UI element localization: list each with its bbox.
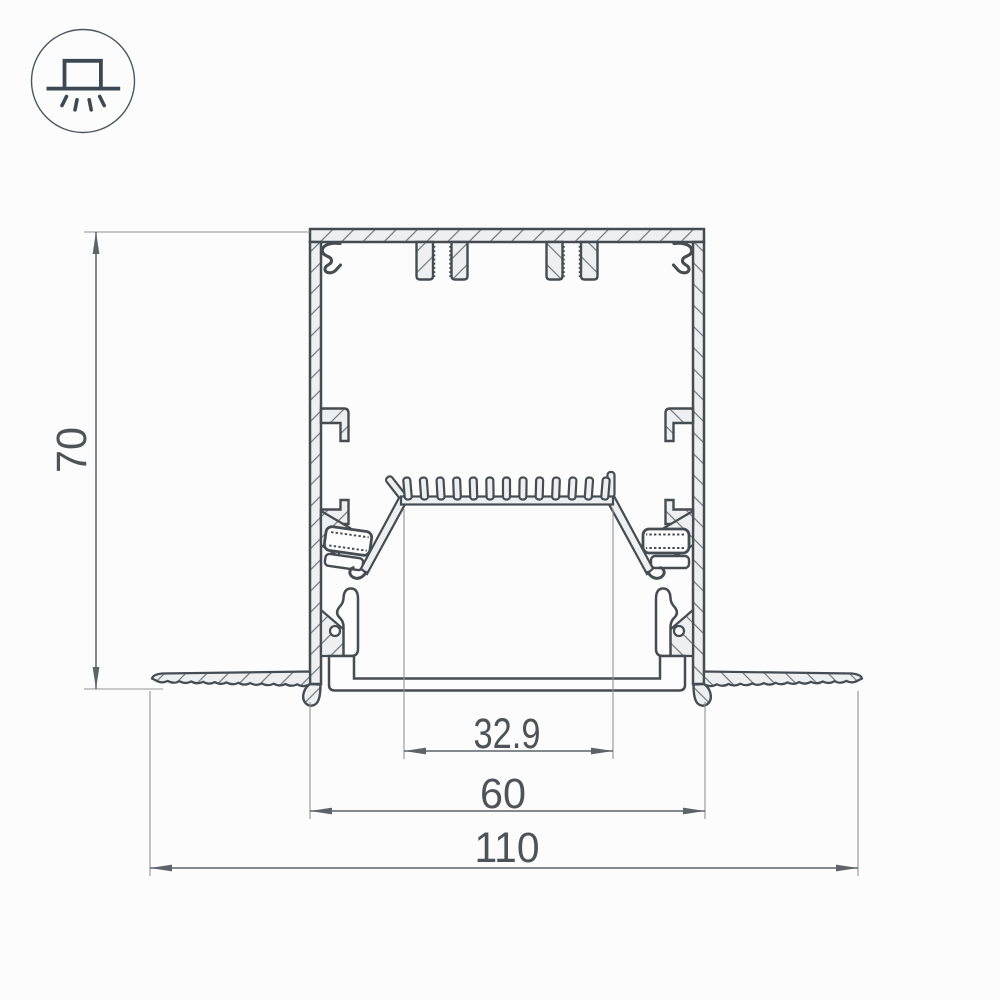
svg-text:32.9: 32.9 [474,710,541,758]
svg-text:110: 110 [475,824,540,872]
svg-text:70: 70 [48,427,96,473]
svg-text:60: 60 [480,770,526,818]
